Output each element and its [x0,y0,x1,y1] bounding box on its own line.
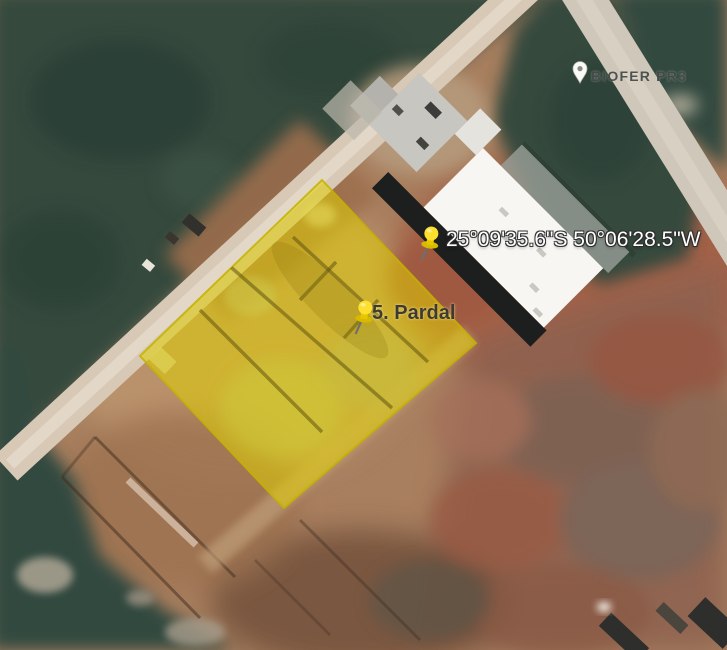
placemark-label-biofer[interactable]: BIOFER PR3 [591,68,687,84]
bright-spot [597,602,611,612]
white-map-pin-icon[interactable] [571,60,589,84]
yellow-pushpin-icon[interactable] [418,226,444,264]
satellite-map[interactable]: 25°09'35.6"S 50°06'28.5"W 5. Pardal BIOF… [0,0,727,650]
placemark-label-coordinates[interactable]: 25°09'35.6"S 50°06'28.5"W [446,228,701,252]
placemark-label-pardal[interactable]: 5. Pardal [372,302,455,325]
